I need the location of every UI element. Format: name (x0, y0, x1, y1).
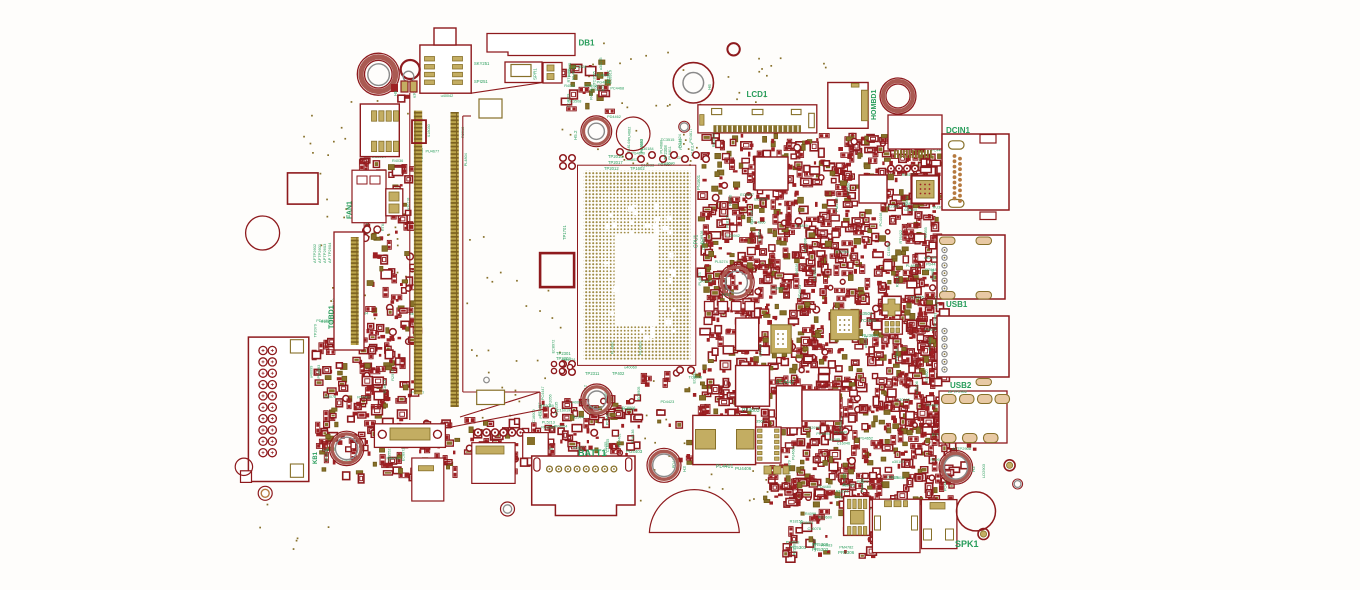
svg-text:PU4637: PU4637 (813, 267, 817, 281)
svg-text:u40099: u40099 (309, 366, 313, 379)
svg-text:PL5235: PL5235 (554, 402, 558, 415)
svg-text:R2900: R2900 (729, 195, 733, 206)
svg-text:SPK1: SPK1 (955, 539, 979, 549)
svg-text:PG4698: PG4698 (803, 238, 807, 252)
svg-text:TP2056: TP2056 (549, 394, 553, 407)
svg-text:DCIN1: DCIN1 (946, 126, 971, 135)
svg-text:R2989: R2989 (679, 138, 683, 149)
svg-text:EC8979: EC8979 (754, 197, 768, 201)
svg-text:EC8972: EC8972 (552, 340, 556, 354)
svg-text:C16045: C16045 (606, 439, 610, 452)
svg-text:PU4403: PU4403 (626, 449, 643, 454)
svg-text:PR5306: PR5306 (838, 550, 855, 555)
svg-text:CPH1: CPH1 (701, 238, 706, 250)
svg-text:FAN1: FAN1 (347, 201, 354, 219)
svg-text:AFTP2902: AFTP2902 (948, 389, 968, 394)
svg-text:PC4442: PC4442 (776, 380, 794, 386)
svg-text:PL4830: PL4830 (834, 430, 847, 434)
svg-text:TP402: TP402 (612, 371, 625, 376)
svg-text:TP1701: TP1701 (562, 225, 567, 240)
svg-text:R4028: R4028 (795, 263, 799, 274)
svg-text:PC4468: PC4468 (610, 86, 624, 90)
svg-text:TP2070: TP2070 (314, 324, 318, 337)
svg-text:TP2012: TP2012 (604, 166, 619, 171)
svg-text:RU3643: RU3643 (541, 425, 555, 429)
svg-text:PD4480: PD4480 (817, 485, 831, 489)
svg-text:PN1601: PN1601 (696, 174, 701, 190)
svg-text:PD4423: PD4423 (798, 285, 802, 299)
svg-text:PL4894: PL4894 (906, 264, 919, 268)
svg-text:CPU1: CPU1 (694, 234, 700, 248)
svg-text:u30107: u30107 (892, 460, 905, 464)
svg-text:RT6427: RT6427 (701, 279, 714, 283)
svg-text:EC8905: EC8905 (637, 387, 641, 401)
svg-text:u30124: u30124 (924, 256, 937, 260)
svg-text:C16095: C16095 (771, 287, 784, 291)
svg-text:PC4447: PC4447 (541, 386, 545, 400)
svg-text:HOMBD1: HOMBD1 (871, 90, 878, 120)
svg-text:R2955: R2955 (924, 227, 928, 238)
svg-text:TP2037: TP2037 (905, 195, 909, 208)
svg-text:AP TP2604: AP TP2604 (327, 242, 332, 263)
svg-text:PT4803: PT4803 (742, 408, 760, 414)
svg-text:TP2072: TP2072 (325, 449, 329, 462)
svg-text:PU4694: PU4694 (816, 432, 830, 436)
svg-text:PG4652: PG4652 (859, 437, 873, 441)
svg-text:PR4604: PR4604 (554, 425, 568, 429)
svg-text:EC8987: EC8987 (740, 193, 754, 197)
svg-text:C16046: C16046 (837, 442, 850, 446)
svg-text:SPI251: SPI251 (474, 79, 488, 84)
svg-text:R18144: R18144 (627, 140, 631, 153)
svg-text:C16019: C16019 (557, 408, 570, 412)
svg-text:u40042: u40042 (441, 94, 454, 98)
svg-text:R2973: R2973 (391, 369, 395, 380)
svg-text:RT6422: RT6422 (899, 230, 903, 243)
svg-text:PL4896: PL4896 (926, 403, 939, 407)
svg-text:R18111: R18111 (836, 489, 849, 493)
svg-text:RU3600: RU3600 (818, 515, 832, 519)
svg-text:PL4810: PL4810 (928, 337, 932, 350)
svg-text:EC8927: EC8927 (925, 369, 929, 383)
svg-text:R4042: R4042 (564, 84, 575, 88)
svg-text:TC3500: TC3500 (846, 183, 850, 197)
svg-text:EC8972: EC8972 (401, 447, 405, 461)
svg-text:LD2903: LD2903 (981, 463, 986, 478)
svg-text:PL5274: PL5274 (715, 260, 728, 264)
svg-text:TP2017: TP2017 (608, 160, 623, 165)
svg-text:TC3515: TC3515 (661, 138, 675, 142)
svg-text:X18095: X18095 (842, 483, 855, 487)
svg-text:PU4682: PU4682 (628, 127, 632, 141)
svg-text:EC8942: EC8942 (726, 234, 740, 238)
svg-text:X18030: X18030 (427, 124, 431, 137)
svg-text:HS1: HS1 (722, 292, 731, 297)
svg-text:PM4760: PM4760 (387, 457, 401, 461)
svg-text:R2942: R2942 (888, 204, 899, 208)
svg-text:PC4461: PC4461 (617, 433, 621, 447)
svg-text:RT6483: RT6483 (357, 395, 370, 399)
svg-text:R2971: R2971 (857, 480, 868, 484)
svg-text:TP1602: TP1602 (630, 166, 645, 171)
svg-text:PG4617: PG4617 (689, 129, 693, 143)
svg-text:RT6432: RT6432 (591, 88, 604, 92)
svg-text:BATT1: BATT1 (578, 448, 606, 458)
svg-text:LCD1: LCD1 (747, 90, 768, 99)
svg-text:R4099: R4099 (805, 512, 816, 516)
svg-text:PM4768: PM4768 (750, 210, 754, 224)
svg-text:RU3632: RU3632 (712, 133, 716, 147)
svg-text:u30175: u30175 (599, 58, 603, 71)
svg-text:R18136: R18136 (631, 429, 635, 442)
svg-text:u40060: u40060 (624, 366, 637, 370)
svg-text:u40078: u40078 (324, 395, 337, 399)
svg-text:R2916: R2916 (896, 276, 900, 287)
svg-text:TC3505: TC3505 (910, 296, 924, 300)
svg-text:PR5302: PR5302 (812, 547, 829, 552)
svg-text:PD4423: PD4423 (661, 400, 675, 404)
svg-text:KB1: KB1 (313, 451, 319, 464)
svg-text:PL4825: PL4825 (596, 73, 609, 77)
svg-text:R2978: R2978 (809, 426, 820, 430)
svg-text:R4036: R4036 (392, 159, 403, 163)
svg-text:H5: H5 (393, 90, 398, 96)
svg-text:PL4866: PL4866 (752, 220, 765, 224)
svg-text:TOBD1: TOBD1 (329, 305, 336, 329)
svg-text:u30106: u30106 (915, 381, 919, 394)
svg-text:PU4683: PU4683 (317, 365, 321, 379)
svg-text:PL4804: PL4804 (464, 153, 468, 166)
svg-text:C16029: C16029 (567, 94, 571, 107)
svg-text:PL4819: PL4819 (795, 224, 808, 228)
svg-text:R18127: R18127 (725, 214, 729, 227)
svg-text:PL4815: PL4815 (891, 476, 904, 480)
svg-text:R18155: R18155 (790, 519, 803, 523)
svg-text:R18144: R18144 (895, 348, 899, 361)
svg-text:SKY251: SKY251 (474, 61, 490, 66)
svg-text:u3501: u3501 (860, 311, 873, 316)
svg-text:R2974: R2974 (573, 415, 584, 419)
svg-text:PG4635: PG4635 (568, 63, 572, 77)
svg-text:H2: H2 (971, 466, 976, 472)
svg-text:C16078: C16078 (808, 527, 821, 531)
svg-text:PU4677: PU4677 (426, 150, 440, 154)
svg-text:PL4878: PL4878 (572, 67, 576, 80)
svg-text:TP2016: TP2016 (608, 154, 623, 159)
svg-text:RU3604: RU3604 (862, 333, 879, 338)
svg-text:PC4448: PC4448 (879, 213, 883, 227)
svg-text:PU4680: PU4680 (791, 446, 795, 460)
svg-text:PC4453: PC4453 (539, 405, 543, 419)
svg-text:u30162: u30162 (897, 398, 910, 402)
svg-text:TP2302: TP2302 (556, 356, 571, 361)
svg-text:DB1: DB1 (579, 39, 596, 48)
svg-text:USB1: USB1 (946, 300, 968, 309)
svg-text:PM4708: PM4708 (835, 197, 839, 211)
svg-text:EC8973: EC8973 (383, 380, 387, 394)
svg-text:RT6486: RT6486 (835, 250, 848, 254)
svg-text:H3: H3 (682, 466, 687, 472)
svg-text:PC5301: PC5301 (790, 545, 807, 550)
svg-text:TP2311: TP2311 (585, 371, 600, 376)
svg-text:PD4462: PD4462 (607, 115, 621, 119)
svg-text:TP2308: TP2308 (663, 145, 668, 160)
svg-text:H5.2: H5.2 (573, 130, 578, 140)
svg-text:EC8906: EC8906 (622, 406, 636, 410)
svg-text:SPR1: SPR1 (533, 68, 538, 80)
svg-text:H6: H6 (707, 84, 712, 90)
svg-text:PU4406: PU4406 (735, 466, 752, 471)
svg-text:C16055: C16055 (887, 243, 891, 256)
svg-text:PL4401: PL4401 (716, 464, 733, 470)
svg-text:YC3501: YC3501 (860, 318, 877, 323)
svg-text:X18054: X18054 (758, 229, 762, 242)
